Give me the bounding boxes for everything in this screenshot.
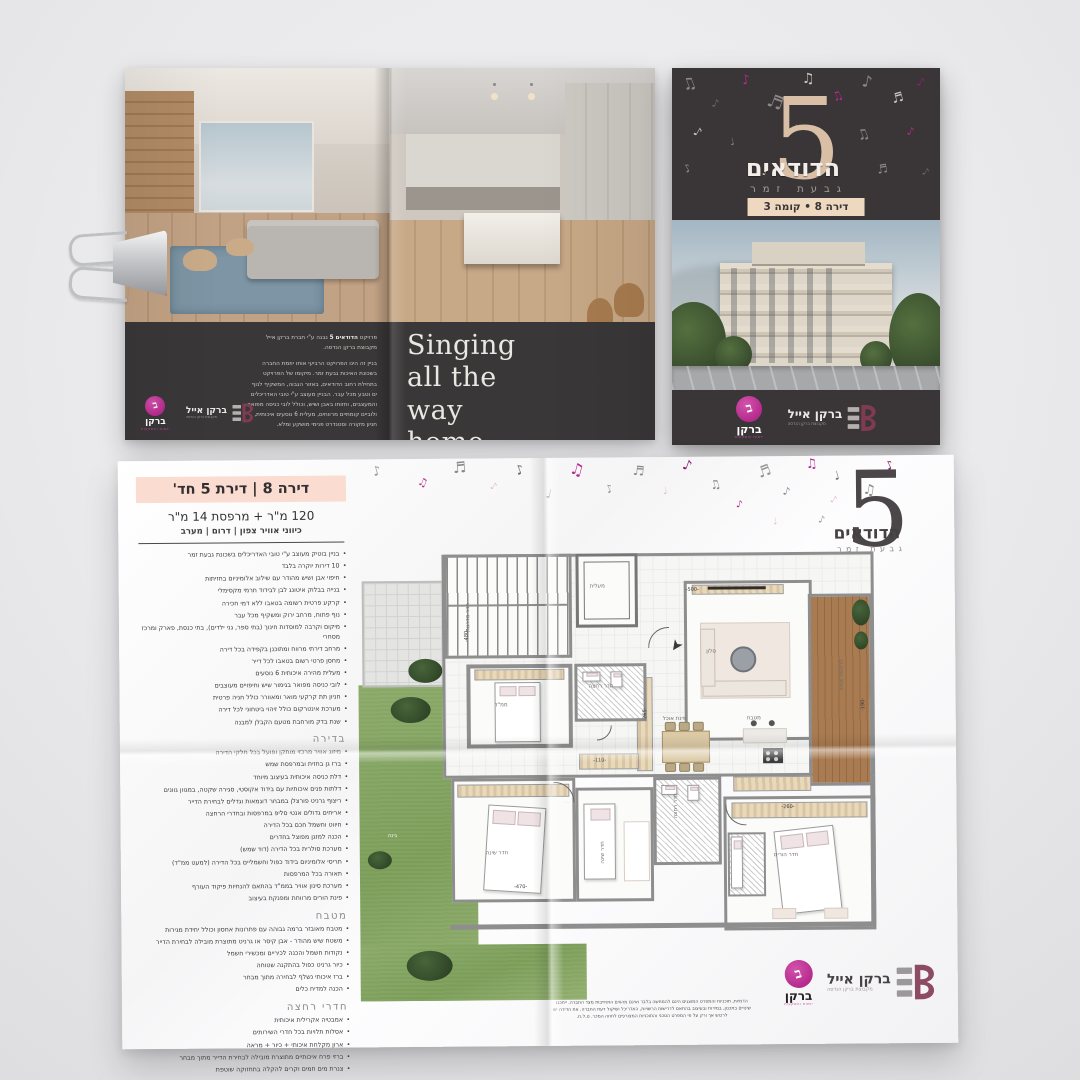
spec-item: ברז גן בחזית ובמרפסת שמש	[138, 760, 348, 771]
spec-item: אמבטיה אקרילית איכותית	[140, 1016, 350, 1027]
music-note-icon: ♩	[772, 518, 778, 528]
divider	[138, 542, 344, 545]
spec-item: מערכת אינטרקום כולל זיהוי ביטחוני לכל די…	[138, 705, 348, 716]
room-label: חדר מדרגות	[465, 603, 471, 632]
section-title: מטבח	[141, 910, 347, 923]
music-note-icon: ♪	[488, 481, 498, 493]
spec-item: תאורה בכל המרפסות	[139, 869, 349, 880]
photo-parking-lines	[672, 366, 940, 390]
room-label: סלון	[706, 649, 716, 655]
room-label: פינת אוכל	[663, 716, 686, 722]
dimension-label: -480-	[464, 629, 470, 642]
barkan-logo-name: ברקן	[145, 418, 166, 427]
spec-item: מיזוג אוויר מרכזי מותקן ופועל בכל חלקי ה…	[138, 748, 348, 759]
barkan-circle-icon: ב	[784, 960, 812, 988]
about-body: בניין זה הינו הפרויקט הרביעי אותו יוזמת …	[245, 359, 377, 430]
spec-item: חיפוי אבן ושיש מהודר עם שילוב אלומיניום …	[137, 574, 347, 585]
music-note-icon: ♬	[452, 460, 467, 476]
kitchen-features-list: מטבח מאובזר ברמה גבוהה עם פתרונות אחסון …	[139, 924, 350, 996]
music-note-icon: ♪	[604, 482, 615, 495]
barkan-circle-icon: ב	[145, 396, 165, 416]
spec-item: 10 דירות יוקרה בלבד	[137, 562, 347, 573]
spec-item: מרחב דירתי מרווח ומתוכנן בקפידה בכל דירה	[137, 644, 347, 655]
music-note-icon: ♪	[735, 500, 743, 511]
spec-item: אריחים גדולים אנטי סליפ במרפסות ובחדרי ה…	[138, 809, 348, 820]
music-note-icon: ♩	[662, 487, 668, 498]
bathroom-features-list: אמבטיה אקרילית איכותיתאסלות תלויות בכל ח…	[140, 1016, 350, 1076]
building-photo	[672, 220, 940, 390]
floor-plan: ➤ מעליתחדר מדרגותסלוןפינת אוכלמטבחמרפסת …	[355, 551, 941, 1012]
barkan-eyal-tagline: מקבוצת ברקן הנדסה	[788, 422, 826, 427]
spec-item: בנייה בבלוק איטונג לבן לבידוד תרמי מקסימ…	[137, 586, 347, 597]
section-title: בדירה	[140, 734, 346, 747]
room-label: חדר רחצה	[673, 793, 679, 818]
apartment-area: 120 מ"ר + מרפסת 14 מ"ר	[136, 508, 346, 524]
backdrop: פרויקט הדודאים 5 נבנה ע"י חברת ברקן אייל…	[0, 0, 1080, 1080]
dimension-label: -260-	[781, 804, 794, 810]
music-note-icon: ♬	[632, 465, 645, 479]
spec-item: קרקע פרטית רשומה בטאבו ללא דמי חכירה	[137, 598, 347, 609]
room-label: חדר הורים	[774, 852, 799, 858]
barkan-logo: ב ברקן יזמות והשקעות	[735, 396, 764, 440]
barkan-logo: ב ברקן יזמות והשקעות	[141, 396, 170, 432]
room-label: מטבח	[747, 715, 761, 721]
section-title: חדרי רחצה	[142, 1002, 348, 1015]
spec-item: מערכת סינון אוויר בממ"ד בהתאם להנחיות פי…	[139, 881, 349, 892]
brand-name: הדודאים	[833, 523, 900, 544]
photo-sofa	[247, 220, 380, 278]
music-note-icon: ♪	[782, 485, 792, 497]
barkan-eyal-logo: ברקן אייל מקבוצת ברקן הנדסה	[186, 402, 254, 424]
brand-subtitle: גבעת זמר	[672, 184, 926, 195]
barkan-eyal-name: ברקן אייל	[827, 972, 891, 989]
about-text: פרויקט הדודאים 5 נבנה ע"י חברת ברקן אייל…	[245, 333, 377, 436]
spec-item: כיור גרניט כפול בהתקנה שטוחה	[140, 961, 350, 972]
photo-window-view	[199, 121, 314, 211]
spec-item: ריצוף גרניט פורצלן במבחר דוגמאות וגדלים …	[138, 796, 348, 807]
spec-item: משטח שיש מהודר - אבן קיסר או גרניט מתוצר…	[139, 936, 349, 947]
photo-marble-island	[464, 213, 559, 264]
barkan-eyal-tagline: מקבוצת ברקן הנדסה	[827, 988, 873, 994]
spec-item: בניין בוטיק מעוצב ע"י טובי האדריכלים בשכ…	[136, 549, 346, 560]
photo-lower-cabinets	[406, 187, 560, 210]
barkan-eyal-b-icon	[896, 962, 936, 1002]
spec-item: לובי כניסה מפואר בגימור שיש וחיפויים מעו…	[137, 681, 347, 692]
room-label: גינה	[388, 833, 397, 839]
music-note-icon: ♫	[568, 460, 586, 479]
photo-tall-cabinets	[565, 83, 655, 230]
kitchen-photo	[390, 68, 655, 322]
sheet-logos: ב ברקן יזמות והשקעות ברקן אייל מקבוצת בר…	[784, 959, 936, 1007]
building-features-list: בניין בוטיק מעוצב ע"י טובי האדריכלים בשכ…	[136, 549, 347, 728]
slogan-text: Singing all the way home	[407, 330, 516, 440]
spec-item: תריסי אלומיניום בידוד כפול וחשמליים בכל …	[139, 857, 349, 868]
spec-item: מעלית מהירה איכותית 6 נוסעים	[137, 669, 347, 680]
room-label: מעלית	[590, 583, 605, 589]
spec-item: ברזי פרח איכותיים מתוצרת מובילה לבחירת ה…	[140, 1052, 350, 1063]
spec-sheet: ♪♫♬♪♪♩♫♪♬♩♪♫♪♬♪♫♪♩♫♪♪♩ 5 הדודאים גבעת זמ…	[118, 455, 959, 1050]
barkan-eyal-name: ברקן אייל	[788, 408, 843, 422]
about-intro: פרויקט הדודאים 5 נבנה ע"י חברת ברקן אייל…	[245, 333, 377, 353]
section-bathrooms: חדרי רחצה אמבטיה אקרילית איכותיתאסלות תל…	[140, 1002, 351, 1076]
cover-brochure: ♫♪♪♬♫♫♪♬♪♪♩♪♫♪♪♩♬♪ 5 הדודאים גבעת זמר די…	[672, 68, 940, 445]
photo-penthouse	[752, 242, 865, 266]
section-apartment: בדירה מיזוג אוויר מרכזי מותקן ופועל בכל …	[138, 734, 349, 905]
barkan-circle-icon: ב	[736, 396, 762, 422]
barkan-logo: ב ברקן יזמות והשקעות	[784, 960, 813, 1007]
room-label: מרפסת שמש	[839, 659, 845, 690]
plan-labels-layer: מעליתחדר מדרגותסלוןפינת אוכלמטבחמרפסת שמ…	[355, 551, 941, 1012]
room-label: ממ"ד	[495, 702, 508, 708]
section-kitchen: מטבח מטבח מאובזר ברמה גבוהה עם פתרונות א…	[139, 910, 350, 996]
spec-item: מטבח מאובזר ברמה גבוהה עם פתרונות אחסון …	[139, 924, 349, 935]
spec-item: מערכת סולרית בכל הדירה (דוד שמש)	[139, 845, 349, 856]
music-note-icon: ♬	[756, 462, 774, 481]
apartment-features-list: מיזוג אוויר מרכזי מותקן ופועל בכל חלקי ה…	[138, 748, 349, 905]
brand-name: הדודאים	[672, 154, 914, 182]
barkan-eyal-logo: ברקן אייל מקבוצת ברקן הנדסה	[827, 962, 936, 1003]
spec-item: צנרת מים חמים וקרים להקלה בתחזוקה שוטפת	[140, 1064, 350, 1075]
barkan-eyal-b-icon	[232, 402, 254, 424]
photo-armchair	[226, 238, 254, 256]
binder-clip	[69, 226, 169, 304]
dimension-label: -265-	[642, 708, 648, 721]
open-brochure: פרויקט הדודאים 5 נבנה ע"י חברת ברקן אייל…	[125, 68, 655, 440]
room-label: חדר שינה	[600, 841, 606, 863]
room-label: חדר שינה	[486, 850, 508, 856]
music-note-icon: ♪	[371, 464, 382, 479]
spec-column: דירה 8 | דירת 5 חד' 120 מ"ר + מרפסת 14 מ…	[136, 476, 351, 1079]
barkan-eyal-tagline: מקבוצת ברקן הנדסה	[186, 416, 217, 420]
music-note-icon: ♪	[681, 458, 694, 474]
photo-armchair	[183, 249, 217, 271]
barkan-eyal-b-icon	[847, 403, 877, 433]
spec-item: נקודות חשמל והכנה לכיריים ומכשירי חשמל	[140, 949, 350, 960]
spec-item: ברז איכותי נשלף לבחירה מתוך מבחר	[140, 973, 350, 984]
brochure-logos: ב ברקן יזמות והשקעות ברקן אייל מקבוצת בר…	[141, 396, 254, 432]
dimension-label: -190-	[860, 698, 866, 711]
spec-item: דלתות פנים איכותיות עם בידוד אקוסטי, סגי…	[138, 784, 348, 795]
spec-item: חיווט וחשמל חכם בכל הדירה	[139, 821, 349, 832]
spec-item: פינת הורים מרווחת ומפנקת בעיצוב	[139, 894, 349, 905]
legal-disclaimer: הדמיות, תוכניות והמפרט המוצגים הינם להמח…	[552, 998, 752, 1021]
room-label: חדר רחצה	[588, 683, 613, 689]
dimension-label: -500-	[686, 587, 699, 593]
barkan-logo-tagline: יזמות והשקעות	[141, 428, 170, 432]
dimension-label: -470-	[514, 884, 527, 890]
spec-item: הכנה למדיח כלים	[140, 985, 350, 996]
brochure-right-page: Singing all the way home	[390, 68, 655, 440]
photo-dining-chair	[587, 298, 613, 322]
apartment-badge: דירה 8 • קומה 3	[748, 198, 865, 216]
air-directions: כיווני אוויר צפון | דרום | מערב	[136, 525, 346, 537]
spec-item: שנת בדק מורחבת מטעם הקבלן למבנה	[138, 717, 348, 728]
about-panel: פרויקט הדודאים 5 נבנה ע"י חברת ברקן אייל…	[125, 322, 390, 440]
music-note-icon: ♪	[514, 463, 526, 478]
music-note-icon: ♩	[545, 488, 553, 501]
barkan-logo-tagline: יזמות והשקעות	[784, 1003, 813, 1007]
spec-item: מחסן פרטי רשום בטאבו לכל דייר	[137, 656, 347, 667]
barkan-logo-name: ברקן	[785, 990, 813, 1002]
dimension-label: -110-	[593, 757, 606, 763]
barkan-logo-tagline: יזמות והשקעות	[735, 436, 764, 440]
spec-item: דלת כניסה איכותית בעיצוב מיוחד	[138, 772, 348, 783]
spec-item: חניון תת קרקעי מואר ומאוורר כולל חניה פר…	[138, 693, 348, 704]
photo-dining-chair	[614, 283, 644, 317]
slogan-panel: Singing all the way home	[390, 322, 655, 440]
apartment-title: דירה 8 | דירת 5 חד'	[136, 476, 346, 504]
barkan-logo-name: ברקן	[737, 424, 762, 435]
spec-item: נוף פתוח, מרחב ירוק ומשקיף מכל עבר	[137, 610, 347, 621]
cover-footer: ב ברקן יזמות והשקעות ברקן אייל מקבוצת בר…	[672, 390, 940, 445]
spec-item: אסלות תלויות בכל חדרי השירותים	[140, 1028, 350, 1039]
spec-item: מיקום וקרבה למוסדות חינוך (בתי ספר, גני …	[137, 622, 347, 643]
music-note-icon: ♫	[709, 477, 723, 491]
spec-item: הכנה למזגן מפוצל בחדרים	[139, 833, 349, 844]
barkan-eyal-logo: ברקן אייל מקבוצת ברקן הנדסה	[788, 403, 878, 433]
spec-item: ארון מקלחת איכותי + כיור + מראה	[140, 1040, 350, 1051]
music-note-icon: ♫	[416, 476, 429, 490]
